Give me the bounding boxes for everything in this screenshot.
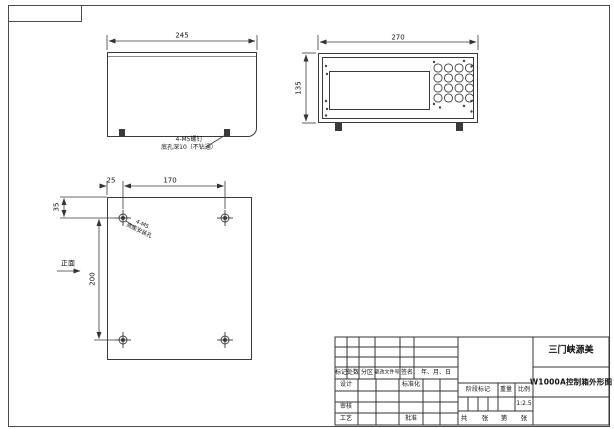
mounting-holes — [115, 210, 233, 348]
mounting-hole — [217, 210, 233, 226]
mounting-hole — [115, 210, 131, 226]
keypad-grid — [434, 64, 474, 102]
cad-drawing-sheet: { "views": { "side": { "width_dim": "245… — [0, 0, 614, 429]
side-view-feet — [119, 129, 230, 137]
front-view-dimensions — [302, 35, 478, 123]
front-view-feet — [335, 123, 463, 131]
bottom-view-dimensions — [57, 181, 225, 340]
drawing-linework — [0, 0, 614, 429]
mounting-hole — [217, 332, 233, 348]
side-view-dimensions — [107, 35, 257, 147]
mounting-hole — [115, 332, 131, 348]
panel-screw-dots — [325, 60, 473, 117]
title-block-grid — [335, 337, 609, 425]
